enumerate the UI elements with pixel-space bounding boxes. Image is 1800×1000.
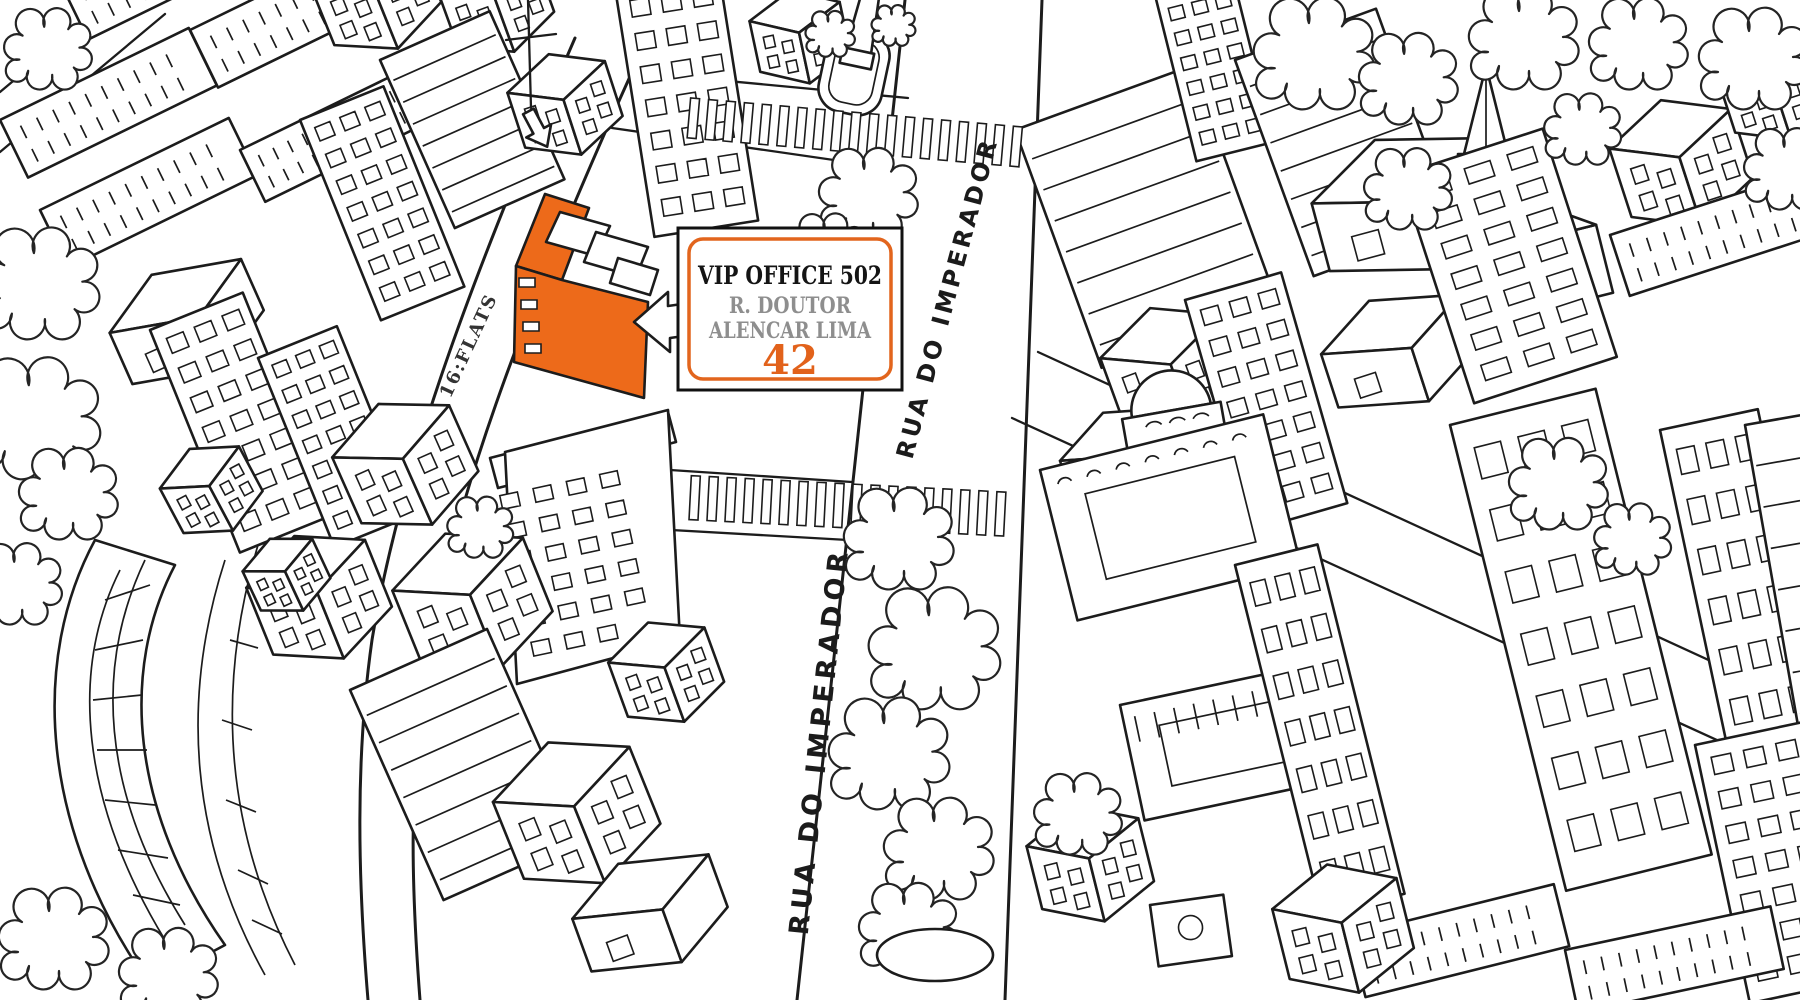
marker-street-line1: R. DOUTOR	[729, 293, 852, 319]
illustrated-map: 16:FLATS RUA DO IMPERADOR RUA DO IMPERAD…	[0, 0, 1800, 1000]
median-planter	[877, 929, 993, 981]
marker-title: VIP OFFICE 502	[697, 261, 882, 290]
highlighted-building	[514, 194, 658, 398]
map-marker: VIP OFFICE 502 R. DOUTOR ALENCAR LIMA 42	[634, 228, 902, 390]
street-label-16-flats: 16:FLATS	[436, 290, 503, 401]
marker-number: 42	[762, 337, 818, 384]
round-window-shed	[1150, 895, 1232, 967]
right-city-blocks	[1015, 0, 1800, 1000]
